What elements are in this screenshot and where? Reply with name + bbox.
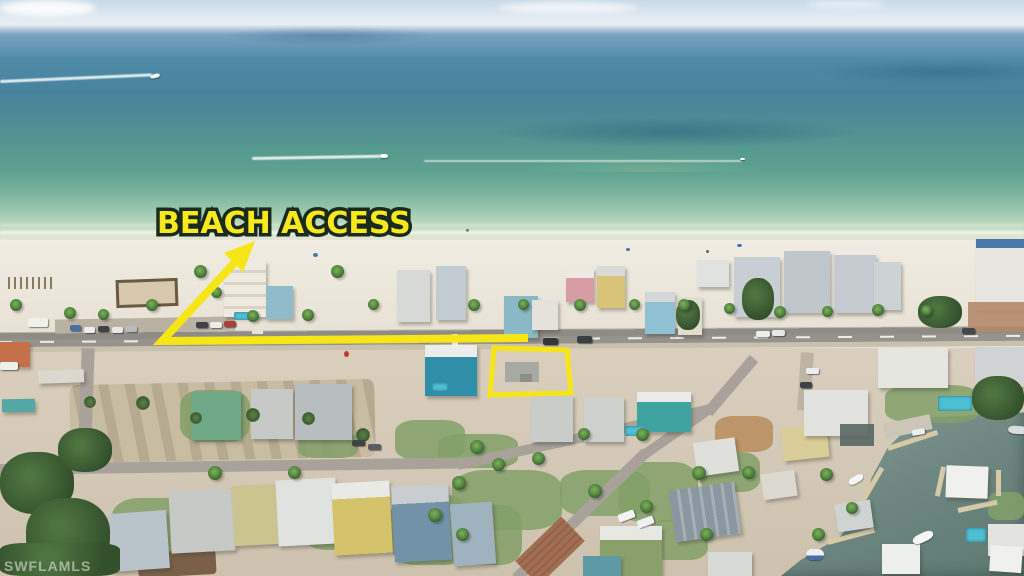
beach-access-label: BEACH ACCESS BEACH ACCESS [157, 206, 411, 241]
mls-watermark: SWFLAMLS [4, 558, 91, 574]
annotation-overlay [0, 0, 1024, 576]
beach-access-arrow-line [162, 259, 528, 341]
aerial-beach-photo: BEACH ACCESS BEACH ACCESS SWFLAMLS [0, 0, 1024, 576]
beach-access-label-text: BEACH ACCESS [157, 206, 411, 241]
property-highlight-box [490, 348, 571, 395]
